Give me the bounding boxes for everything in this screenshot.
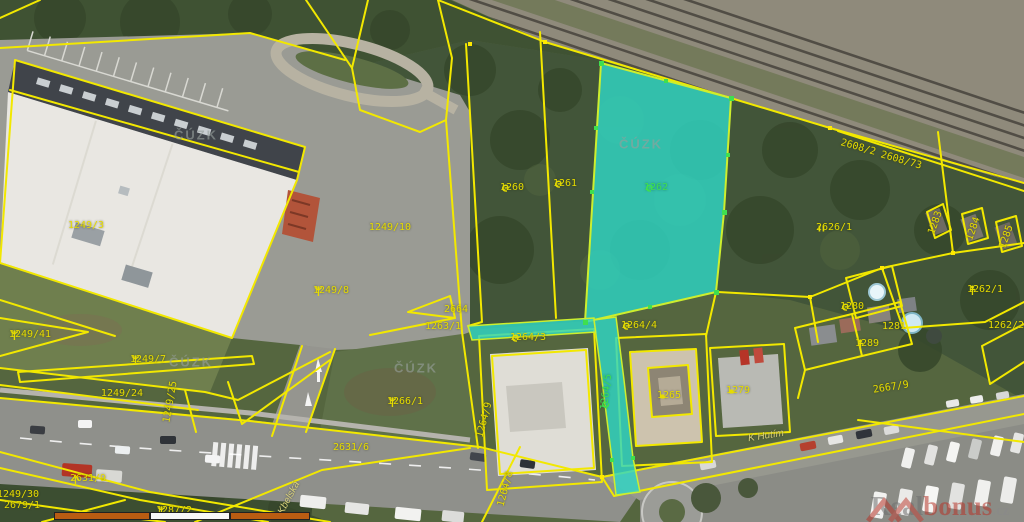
aerial-imagery: " [0, 0, 1024, 522]
cadastral-map-view[interactable]: " [0, 0, 1024, 522]
